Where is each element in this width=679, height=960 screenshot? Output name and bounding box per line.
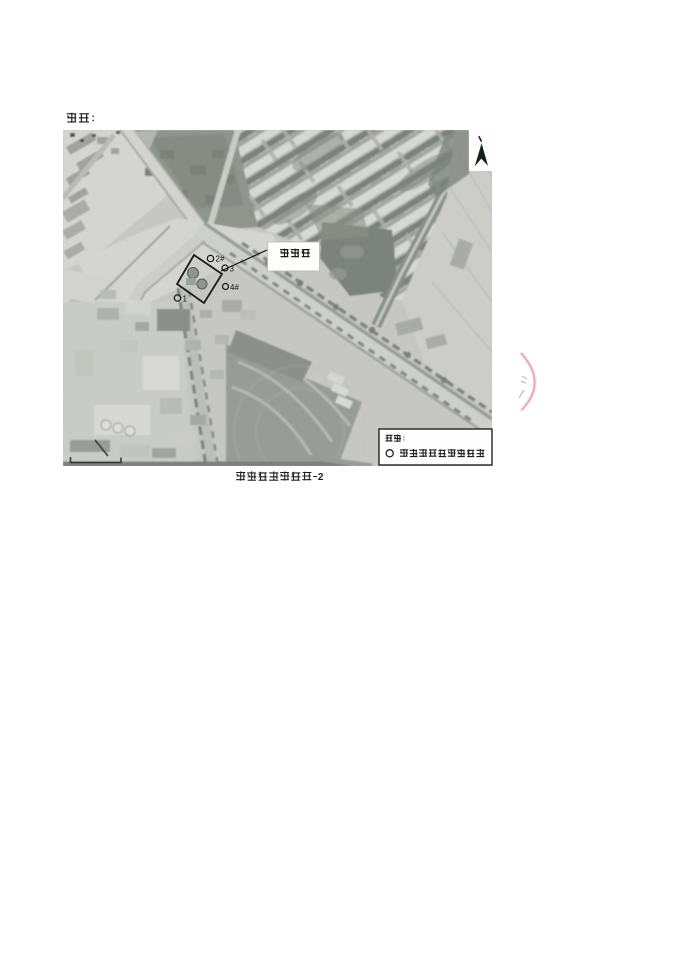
svg-text:4#: 4# — [230, 283, 239, 292]
svg-text:1: 1 — [183, 295, 188, 304]
svg-text:2: 2 — [318, 472, 324, 483]
svg-text:2#: 2# — [216, 255, 225, 264]
